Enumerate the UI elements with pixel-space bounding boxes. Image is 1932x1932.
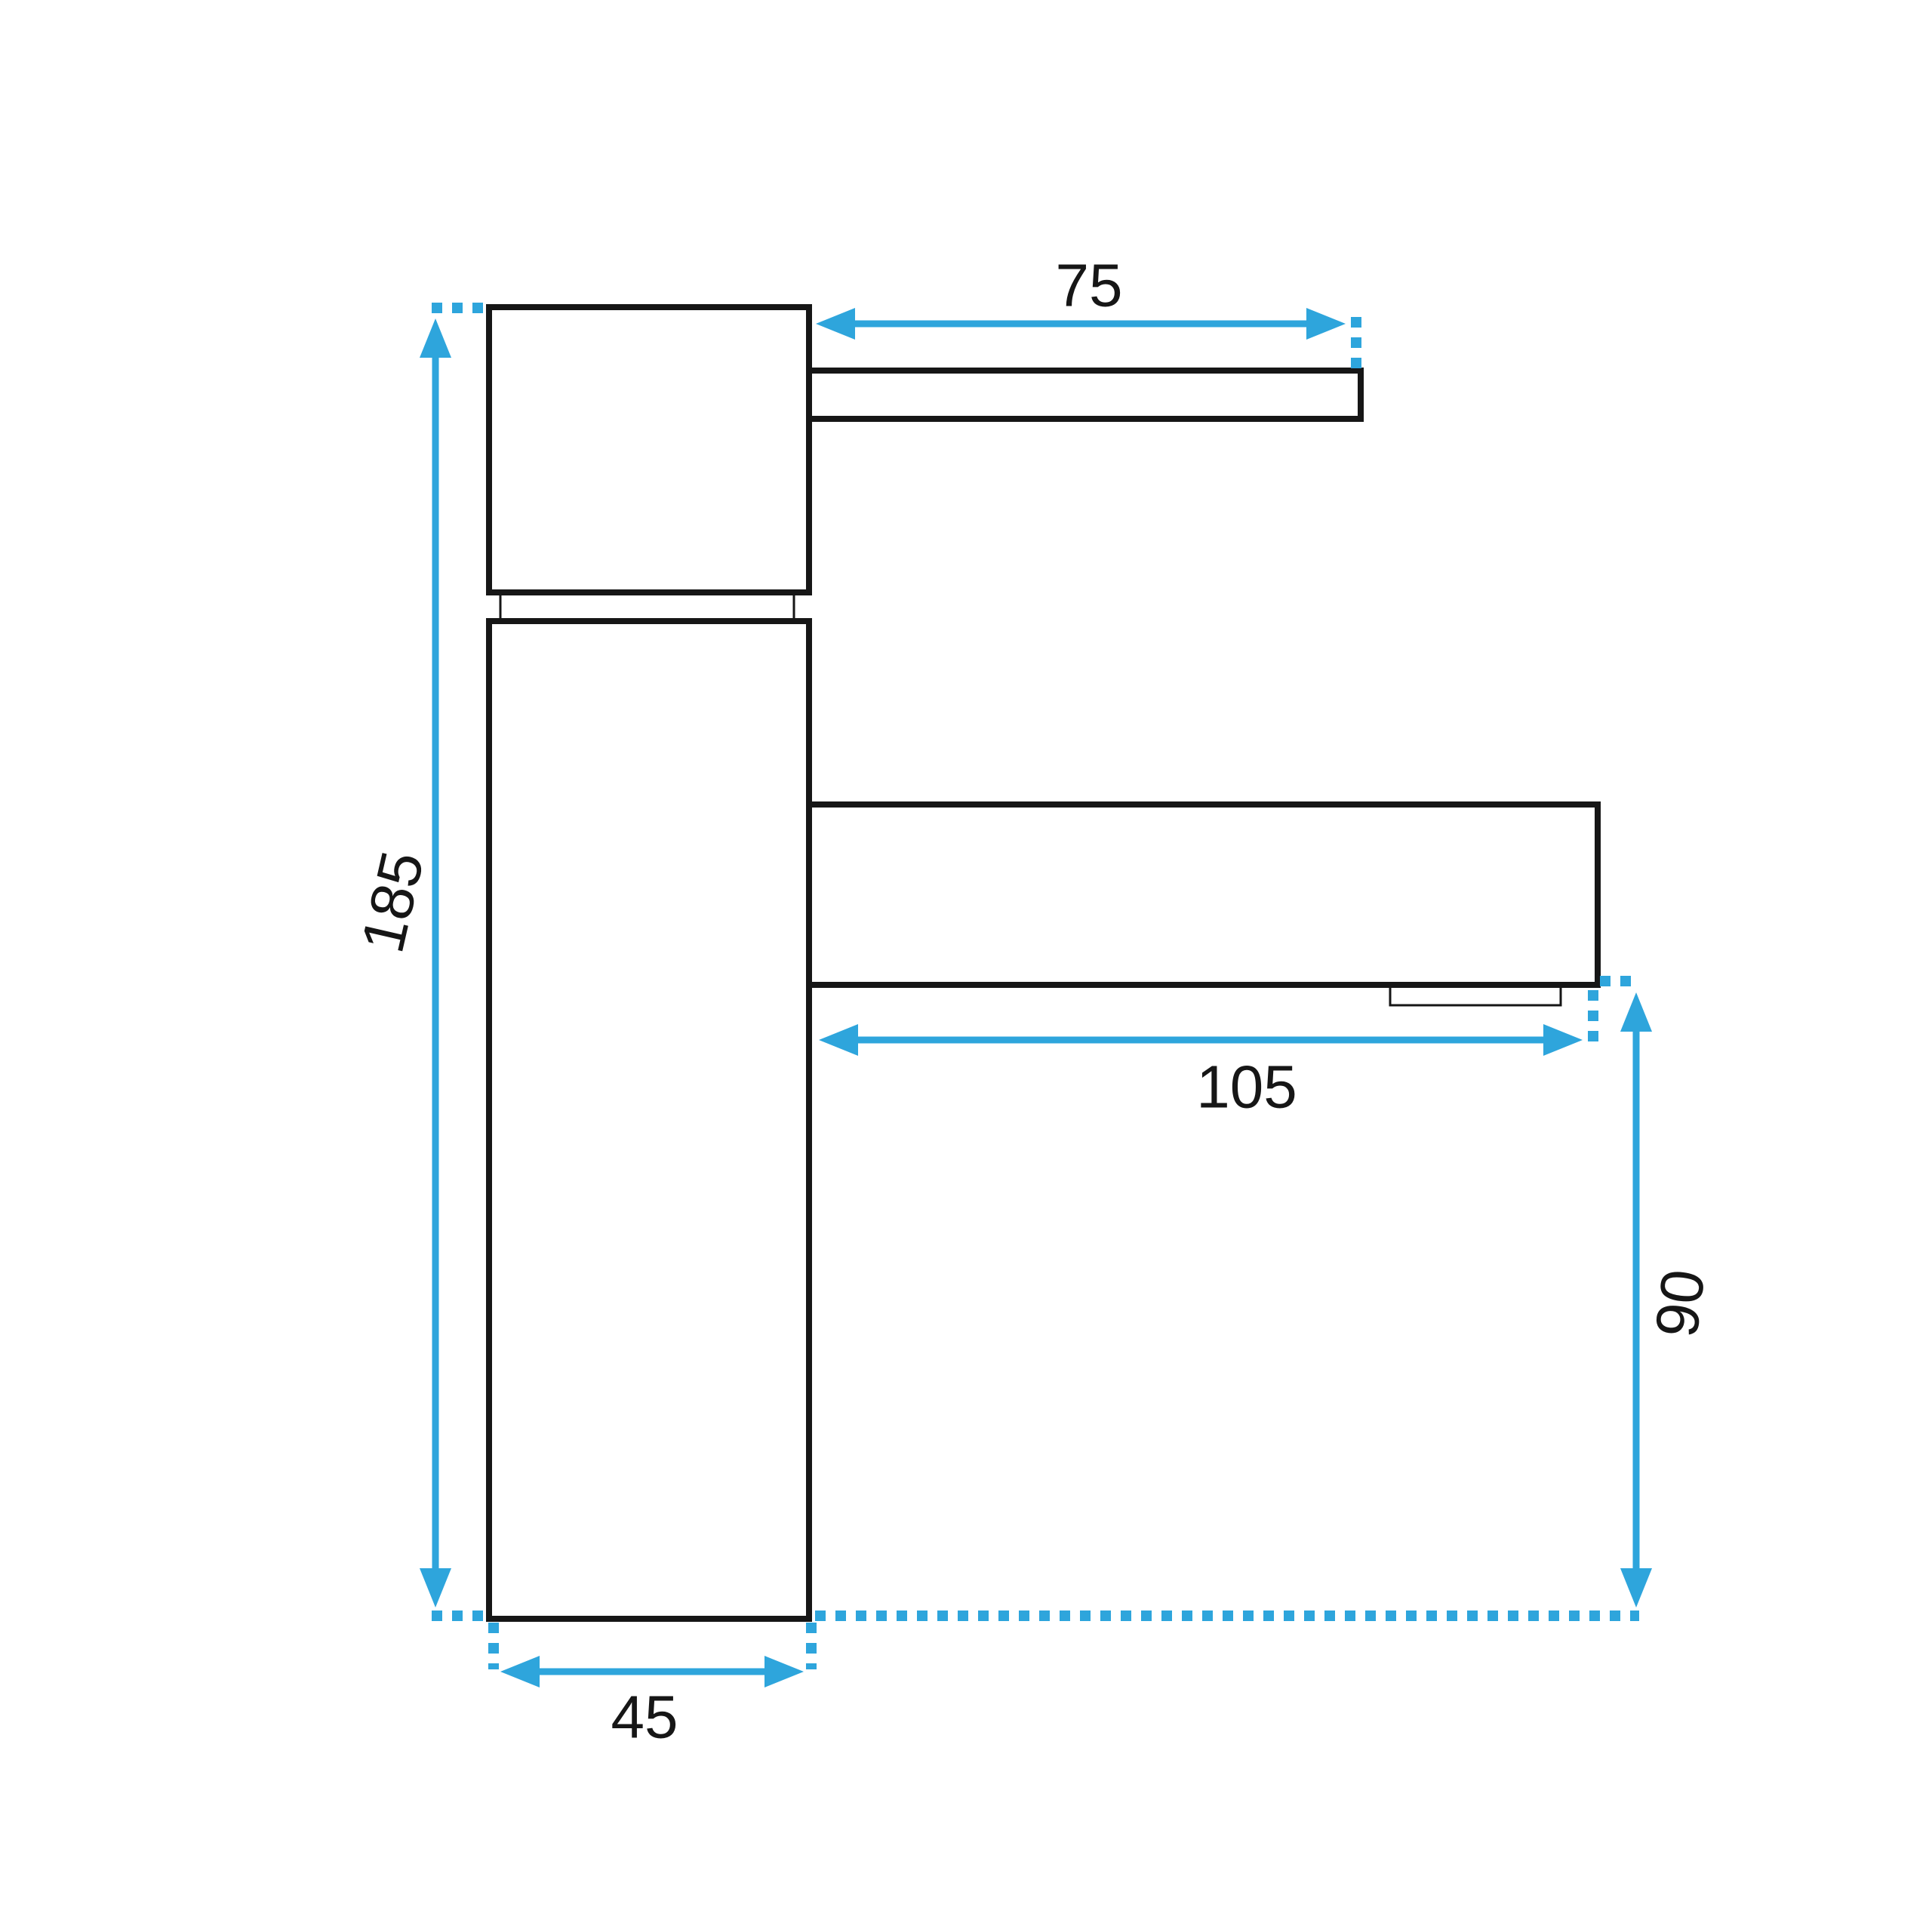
dim-185-arrowhead-bottom [420, 1568, 451, 1607]
dimension-lever-length: 75 [816, 252, 1346, 340]
dim-105-arrowhead-right [1543, 1024, 1583, 1056]
dim-75-arrowhead-right [1306, 308, 1346, 340]
dim-45-arrowhead-right [764, 1656, 804, 1687]
dim-label-185: 185 [349, 845, 437, 958]
dim-label-90: 90 [1642, 1266, 1717, 1340]
dim-105-arrowhead-left [819, 1024, 858, 1056]
aerator [1390, 985, 1561, 1005]
spout [809, 804, 1598, 985]
handle-lever [809, 371, 1361, 419]
dim-185-arrowhead-top [420, 318, 451, 358]
dim-45-arrowhead-left [500, 1656, 540, 1687]
dimension-spout-reach: 105 [819, 1024, 1583, 1121]
faucet-outline [489, 307, 1598, 1619]
dimension-overall-height: 185 [349, 318, 451, 1607]
dim-label-75: 75 [1056, 252, 1123, 319]
dim-90-arrowhead-bottom [1620, 1568, 1652, 1607]
dim-label-45: 45 [611, 1684, 678, 1751]
collar-ring [500, 592, 794, 621]
dim-label-105: 105 [1196, 1054, 1297, 1121]
faucet-technical-drawing: 75 185 105 90 45 [0, 0, 1932, 1932]
dimension-base-depth: 45 [500, 1656, 804, 1751]
dim-75-arrowhead-left [816, 308, 855, 340]
body-column [489, 621, 809, 1619]
dimension-outlet-height: 90 [1620, 992, 1718, 1607]
handle-block [489, 307, 809, 592]
dim-90-arrowhead-top [1620, 992, 1652, 1032]
